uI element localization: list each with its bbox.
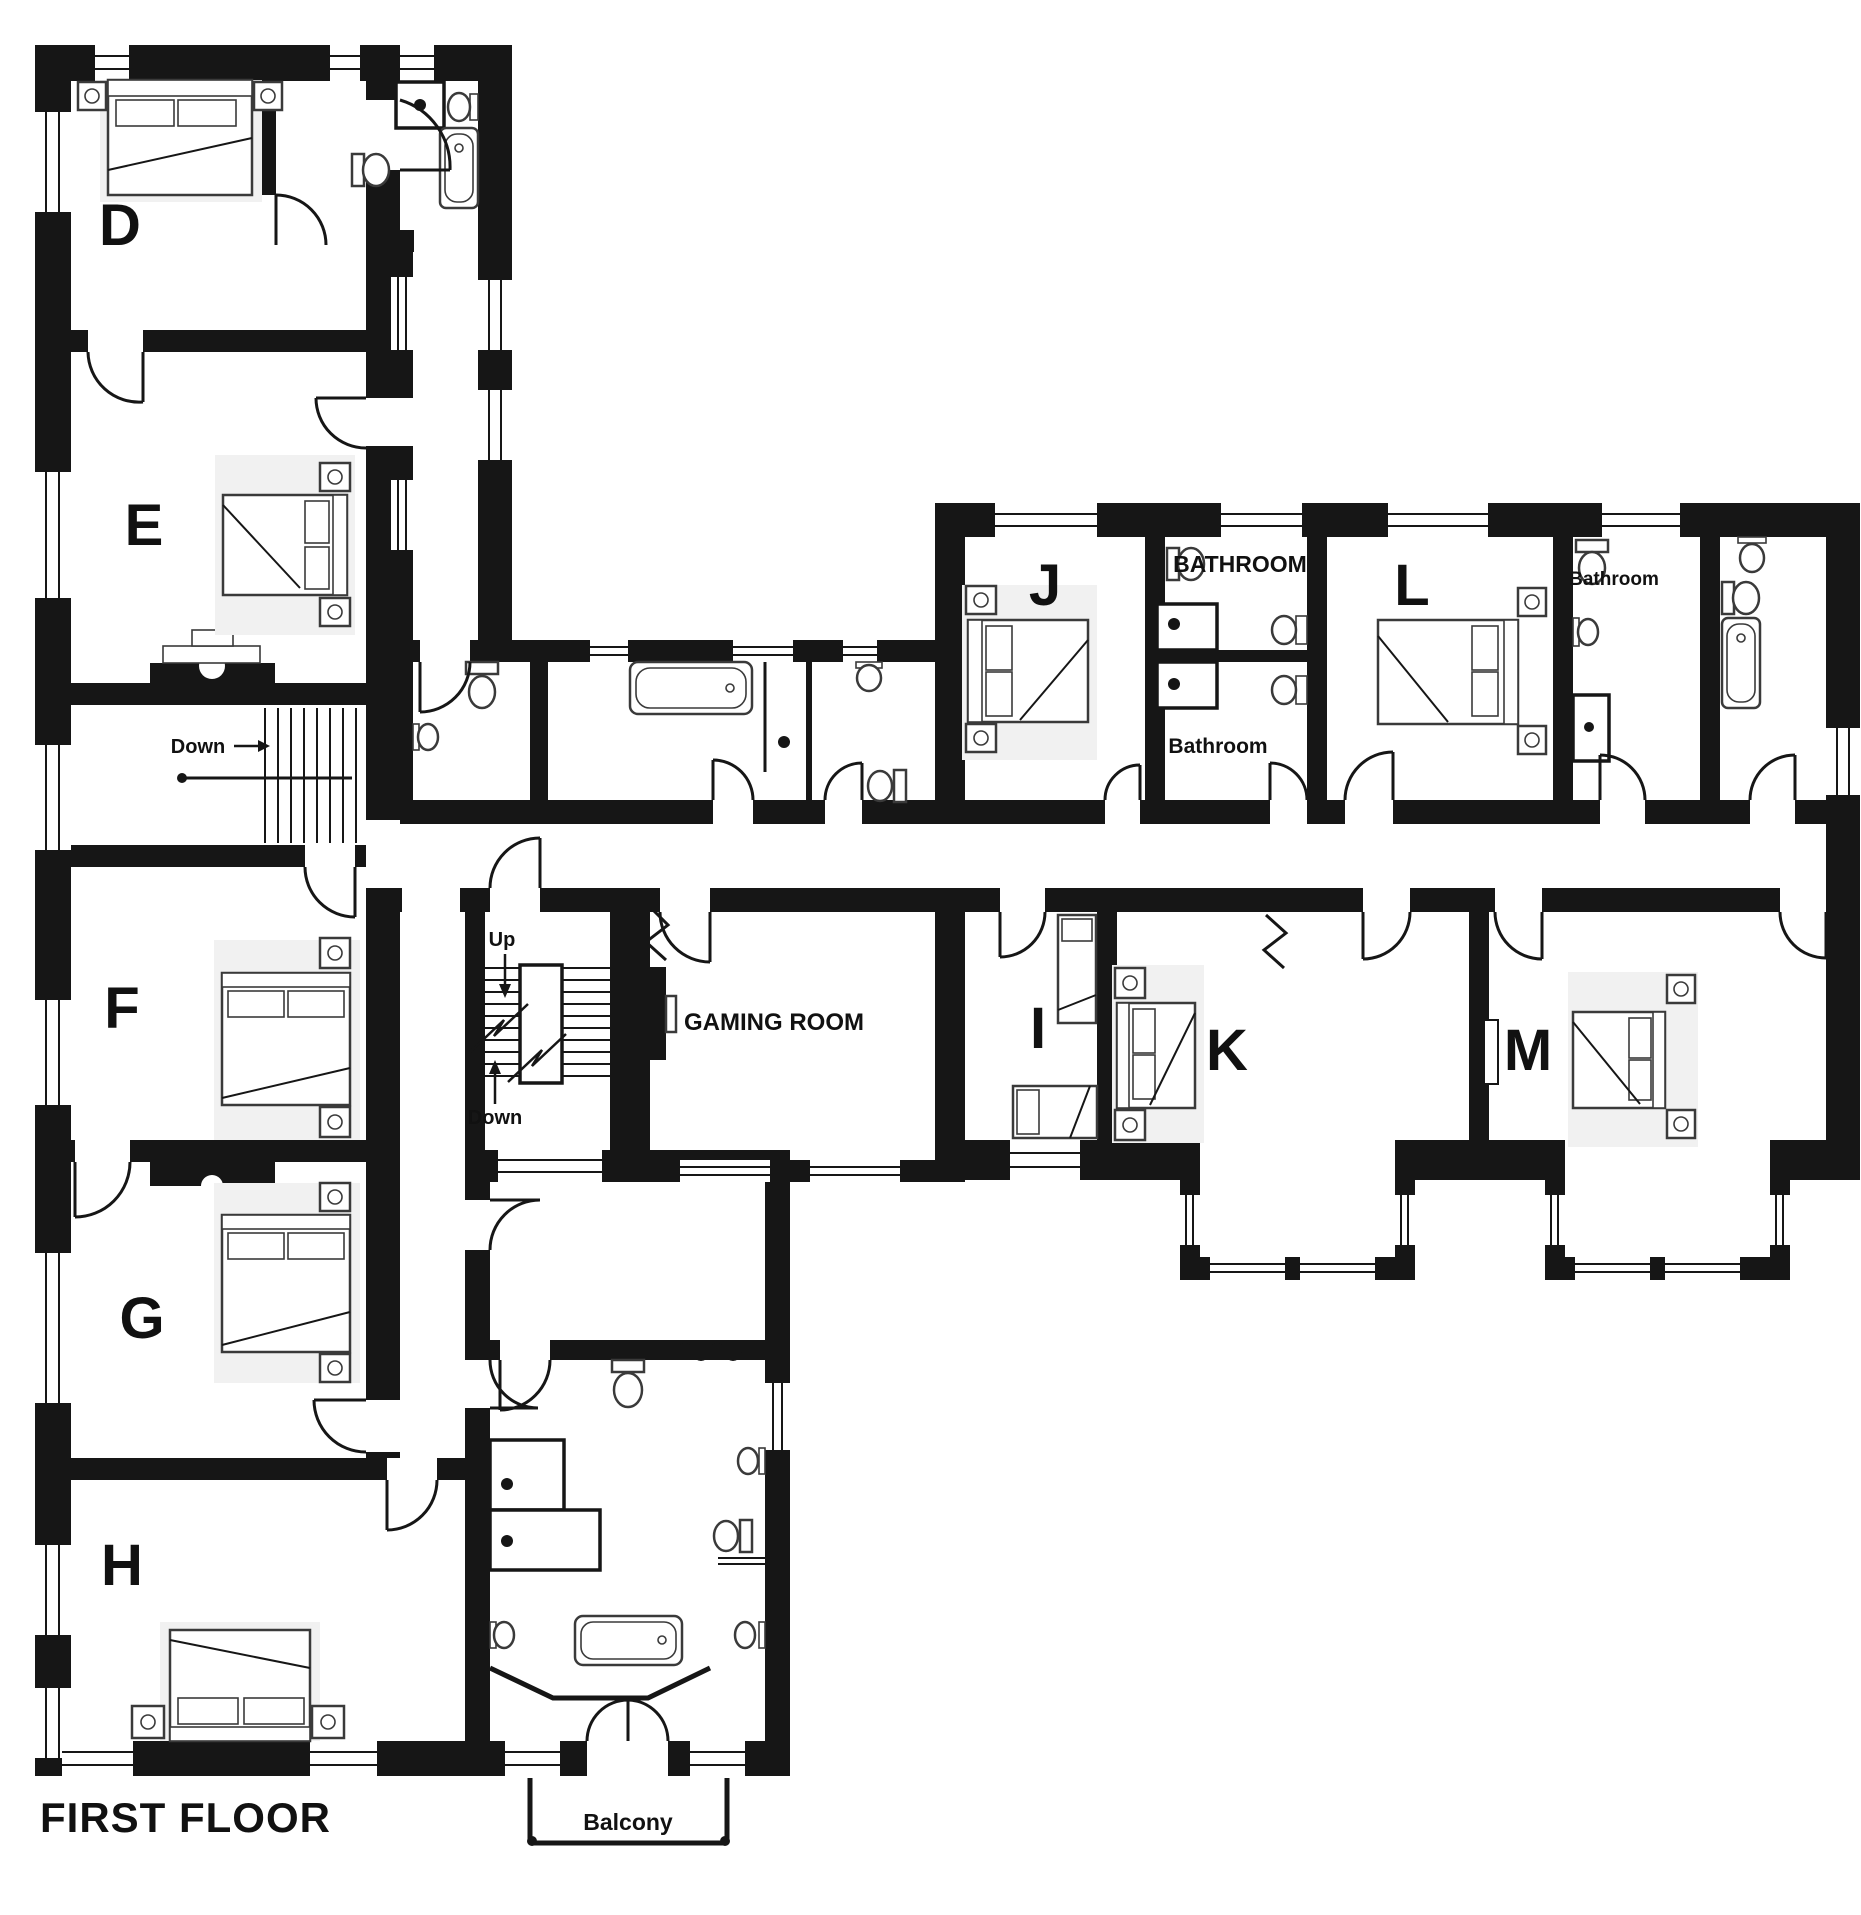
shower-icon: [1157, 662, 1217, 708]
room-label-j: J: [1029, 553, 1061, 618]
nightstand-icon: [1667, 1110, 1695, 1138]
bathtub-icon: [575, 1616, 682, 1665]
shower-icon: [490, 1440, 564, 1510]
sink-icon: [1573, 618, 1598, 646]
walls: [35, 45, 1860, 1776]
nightstand-icon: [320, 938, 350, 968]
page-title: FIRST FLOOR: [40, 1794, 331, 1841]
floor-plan-svg: D E F G H I J K L M GAMING ROOM BATHROOM…: [0, 0, 1861, 1915]
window: [843, 640, 877, 662]
window: [1010, 1140, 1080, 1180]
bathroom-small-label: Bathroom: [1569, 569, 1659, 590]
window: [35, 745, 71, 850]
bathtub-icon: [630, 662, 752, 714]
bay-window: [1770, 1195, 1790, 1245]
window: [505, 1741, 560, 1776]
window: [95, 45, 129, 81]
nightstand-icon: [320, 598, 350, 626]
room-label-d: D: [99, 193, 141, 258]
shower-icon: [1157, 604, 1217, 650]
tv-icon: [650, 967, 676, 1060]
nightstand-icon: [966, 724, 996, 752]
sink-icon: [856, 662, 882, 691]
single-bed-icon: [1013, 1086, 1097, 1138]
room-label-f: F: [104, 976, 139, 1041]
double-bed-icon: [170, 1630, 310, 1741]
toilet-icon: [868, 770, 906, 802]
nightstand-icon: [320, 1107, 350, 1137]
nightstand-icon: [1518, 726, 1546, 754]
nightstand-icon: [312, 1706, 344, 1738]
nightstand-icon: [78, 82, 106, 110]
stairs-down-center-label: Down: [468, 1107, 522, 1129]
double-bed-icon: [222, 973, 350, 1105]
double-bed-icon: [1378, 620, 1518, 724]
bay-window: [1395, 1195, 1415, 1245]
double-bed-icon: [1117, 1003, 1195, 1108]
toilet-icon: [612, 1360, 644, 1407]
double-bed-icon: [222, 1215, 350, 1352]
sink-icon: [1272, 676, 1307, 704]
window: [35, 1545, 71, 1635]
window: [810, 1160, 900, 1182]
window: [35, 112, 71, 212]
room-label-g: G: [119, 1286, 164, 1351]
tv-icon: [1484, 1020, 1498, 1084]
window: [733, 640, 793, 662]
room-label-h: H: [101, 1533, 143, 1598]
nightstand-icon: [320, 1183, 350, 1211]
window: [1602, 503, 1680, 537]
window: [35, 1253, 71, 1403]
window: [62, 1741, 133, 1776]
window: [1221, 503, 1302, 537]
sink-icon: [738, 1448, 765, 1474]
room-label-k: K: [1206, 1018, 1248, 1083]
sink-icon: [1272, 616, 1307, 644]
room-label-i: I: [1030, 996, 1046, 1061]
stairs-left: [177, 708, 356, 843]
window: [498, 1150, 602, 1182]
window: [680, 1160, 770, 1182]
sink-icon: [448, 93, 478, 121]
nightstand-icon: [132, 1706, 164, 1738]
nightstand-icon: [320, 463, 350, 491]
window: [478, 280, 512, 350]
nightstand-icon: [1518, 588, 1546, 616]
window: [1826, 728, 1860, 795]
toilet-icon: [1722, 582, 1759, 614]
room-label-l: L: [1394, 553, 1429, 618]
double-bed-icon: [108, 80, 252, 195]
shower-icon: [396, 82, 444, 128]
bay-window: [1545, 1195, 1565, 1245]
stairs-down-left-label: Down: [171, 736, 225, 758]
balcony-bay-wall: [490, 1668, 710, 1698]
shower-icon: [1573, 695, 1609, 761]
double-bed-icon: [1573, 1012, 1665, 1108]
toilet-icon: [714, 1520, 766, 1564]
gaming-room-label: GAMING ROOM: [684, 1009, 864, 1036]
bay-window: [1665, 1257, 1740, 1280]
bay-window: [1180, 1195, 1200, 1245]
window: [765, 1383, 790, 1450]
room-label-m: M: [1504, 1018, 1552, 1083]
window: [330, 45, 360, 81]
window: [995, 503, 1097, 537]
nightstand-icon: [1115, 1110, 1145, 1140]
window: [478, 390, 512, 460]
bathroom-mid-label: Bathroom: [1168, 735, 1267, 758]
toilet-icon: [352, 154, 389, 186]
shower-icon: [765, 662, 790, 772]
window: [391, 277, 413, 350]
sink-icon: [735, 1622, 765, 1648]
bay-window: [1300, 1257, 1375, 1280]
window: [391, 480, 413, 550]
window: [310, 1741, 377, 1776]
nightstand-icon: [1115, 968, 1145, 998]
window: [35, 1000, 71, 1105]
floor-plan-page: D E F G H I J K L M GAMING ROOM BATHROOM…: [0, 0, 1861, 1915]
sink-icon: [1738, 537, 1766, 572]
stairs-center: [470, 954, 610, 1104]
nightstand-icon: [966, 586, 996, 614]
nightstand-icon: [254, 82, 282, 110]
balcony-label: Balcony: [583, 1809, 673, 1835]
window: [400, 45, 434, 81]
sink-icon: [490, 1622, 514, 1648]
window: [35, 472, 71, 598]
nightstand-icon: [1667, 975, 1695, 1003]
double-bed-icon: [223, 495, 347, 595]
single-bed-icon: [1058, 915, 1096, 1023]
wall-break-symbols: [646, 905, 1286, 968]
sink-icon: [413, 724, 438, 750]
window: [590, 640, 628, 662]
double-bed-icon: [968, 620, 1088, 722]
stairs-up-center-label: Up: [489, 929, 516, 951]
bathtub-icon: [1722, 618, 1760, 708]
window: [1388, 503, 1488, 537]
room-label-e: E: [125, 493, 164, 558]
shower-icon: [490, 1510, 600, 1570]
bay-window: [1575, 1257, 1650, 1280]
bay-window: [1210, 1257, 1285, 1280]
window: [690, 1741, 745, 1776]
bathroom-main-label: BATHROOM: [1173, 551, 1307, 577]
nightstand-icon: [320, 1354, 350, 1382]
